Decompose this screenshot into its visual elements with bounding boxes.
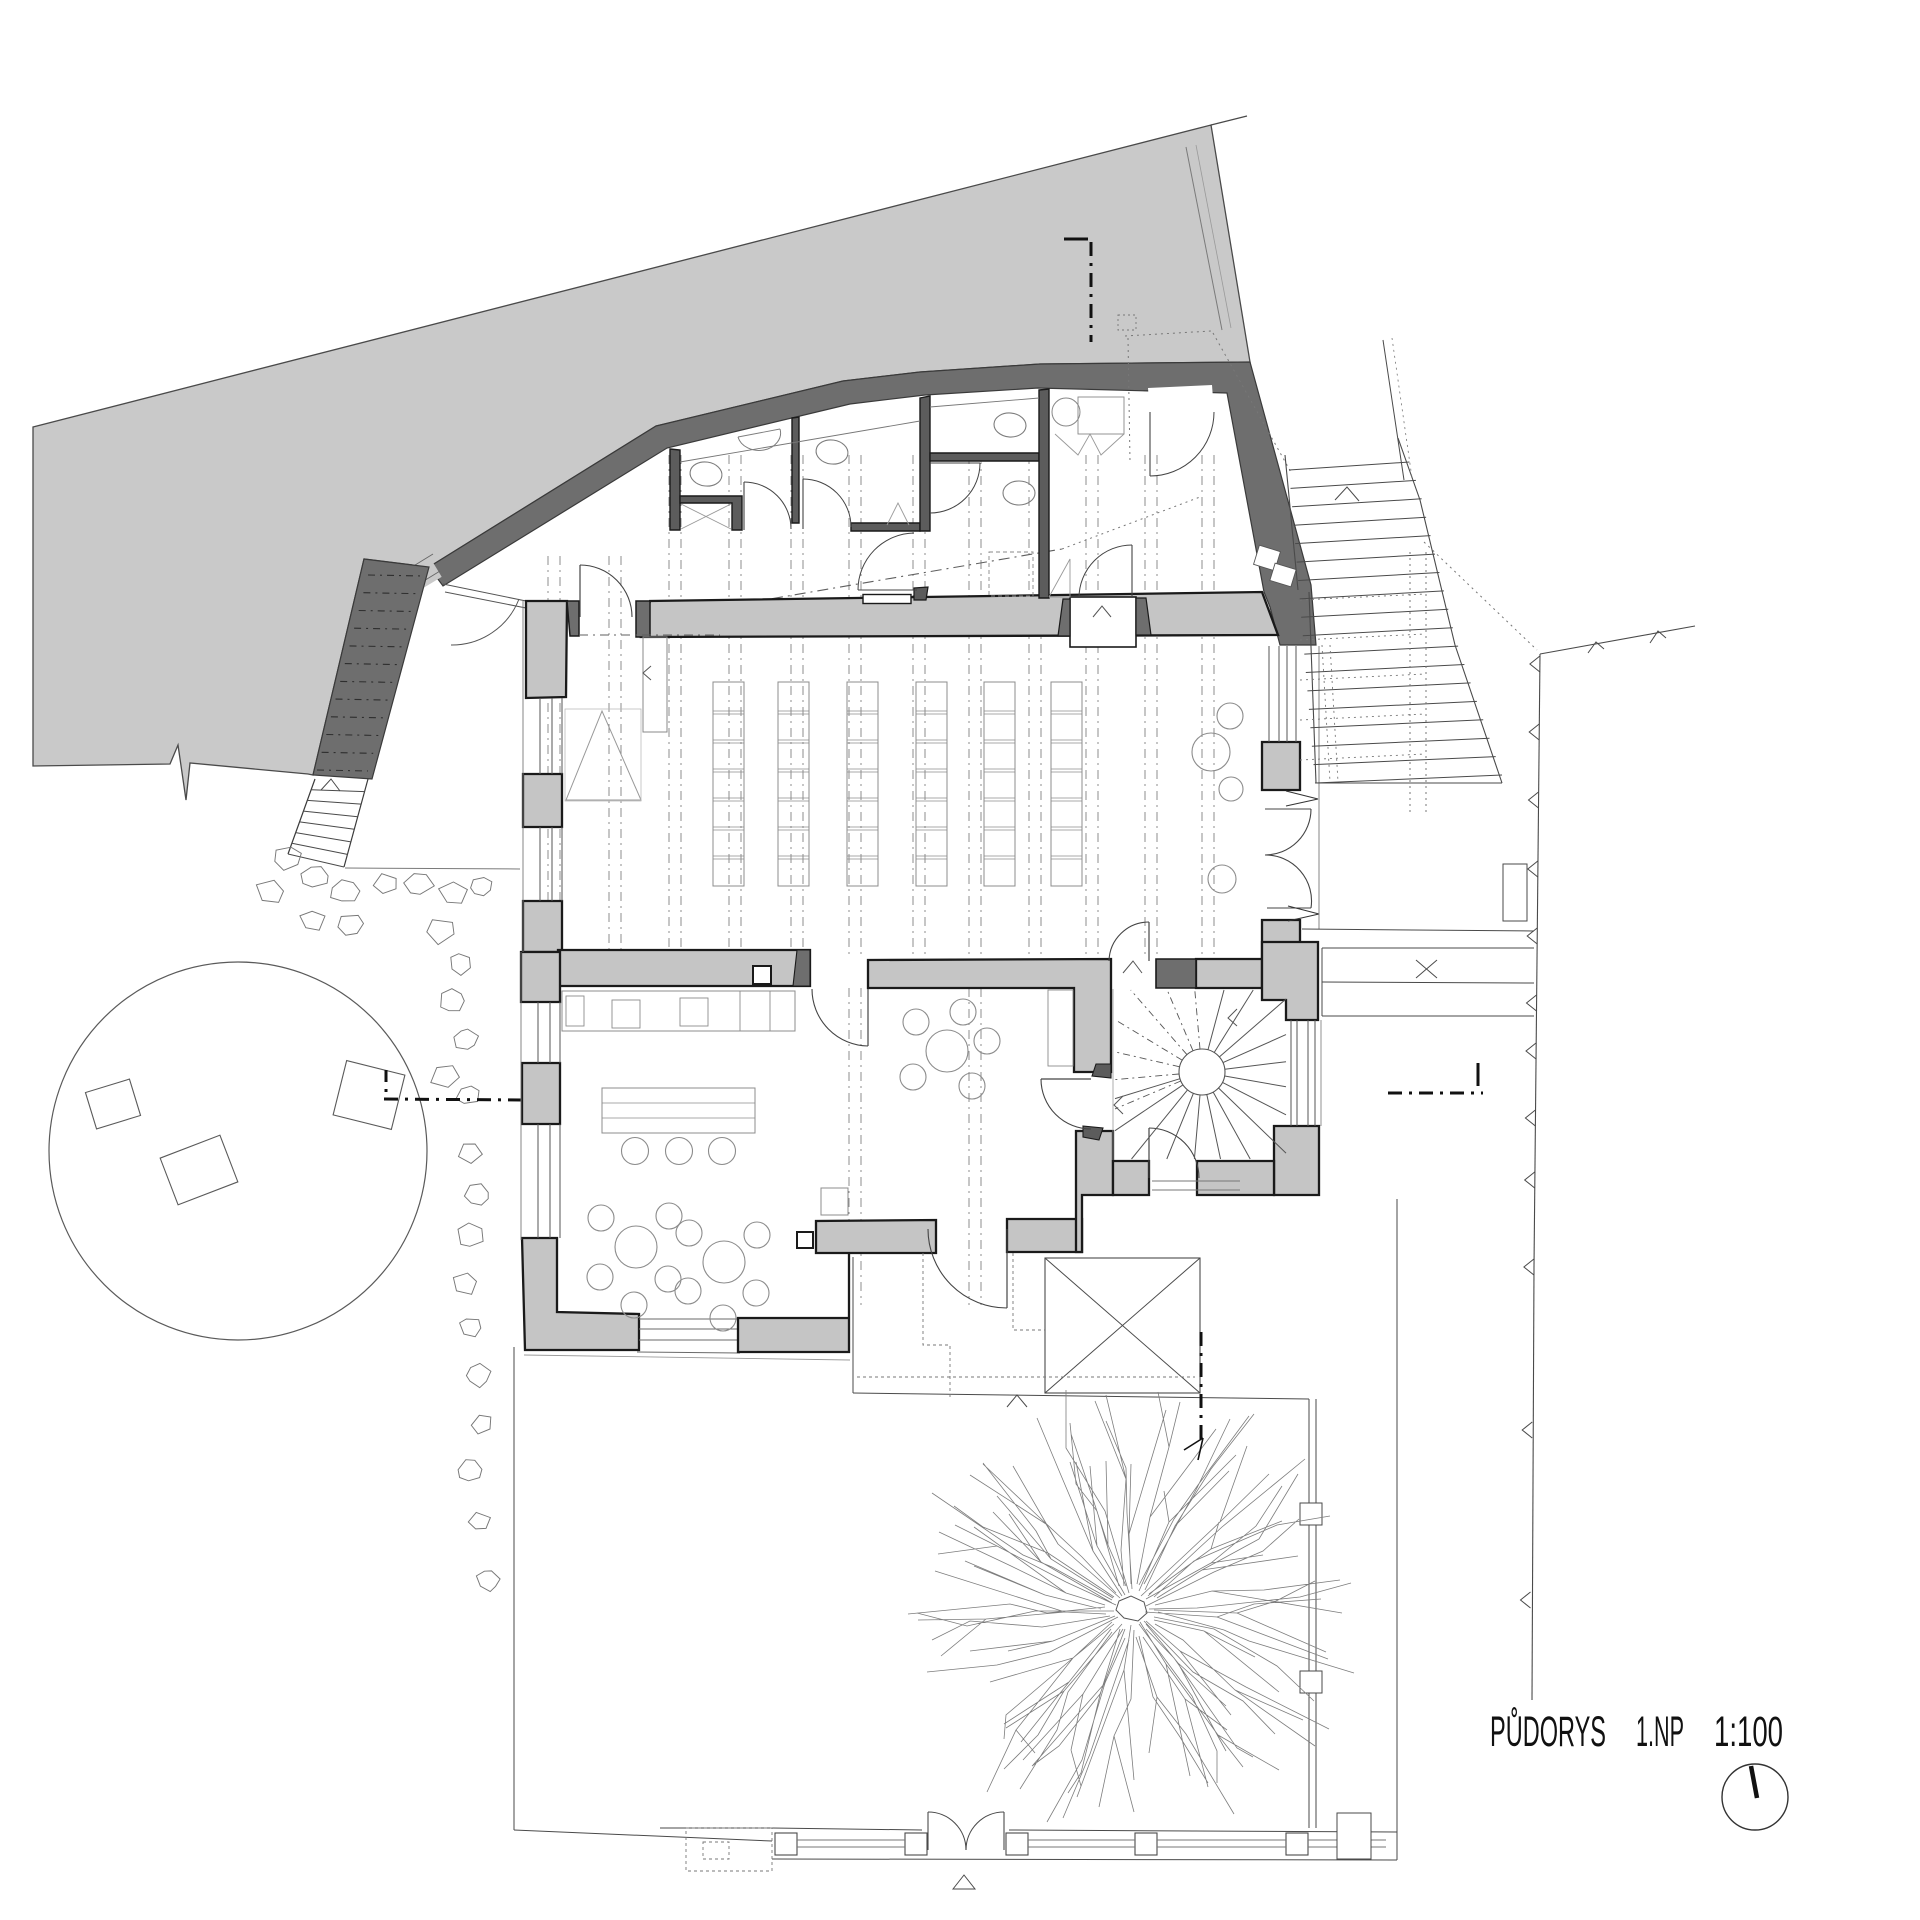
- svg-text:1:100: 1:100: [1714, 1708, 1783, 1756]
- svg-text:PŮDORYS: PŮDORYS: [1490, 1707, 1606, 1756]
- svg-text:1.NP: 1.NP: [1636, 1708, 1684, 1756]
